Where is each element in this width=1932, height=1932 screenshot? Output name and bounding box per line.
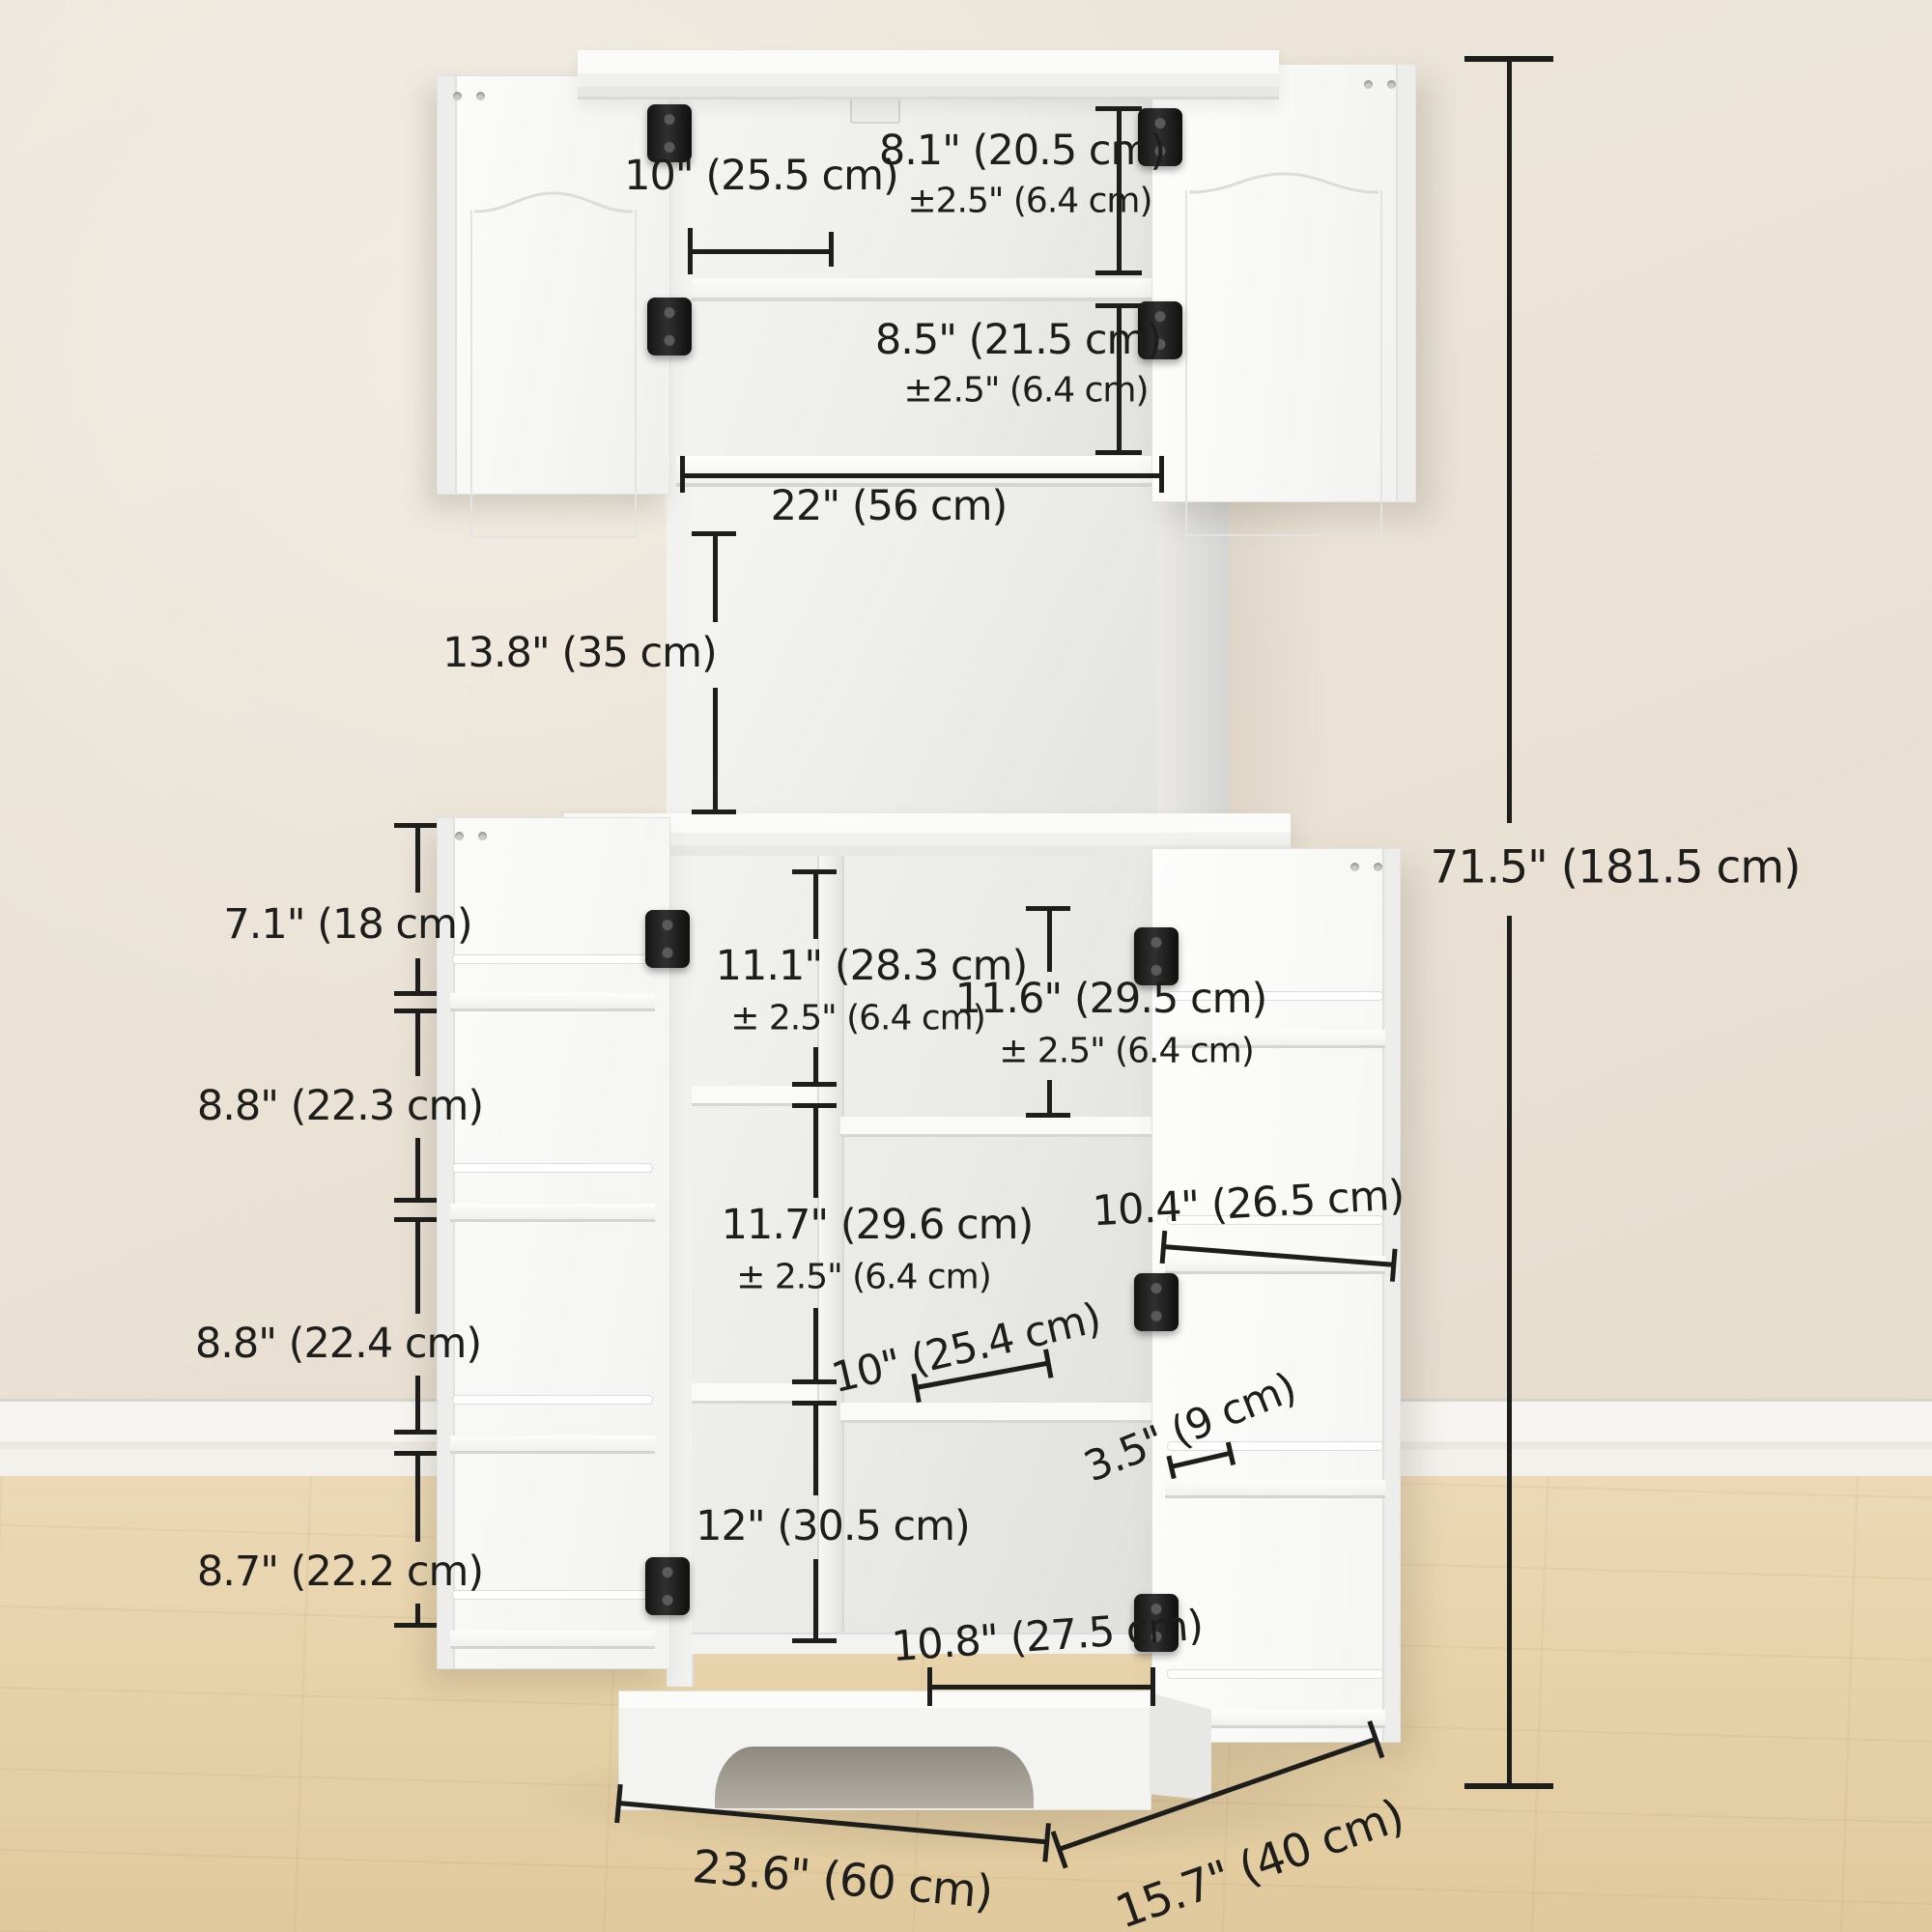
left-rack-rail bbox=[452, 1395, 653, 1405]
dim-cap bbox=[394, 1430, 437, 1435]
dim-overall-height-label: 71.5" (181.5 cm) bbox=[1431, 841, 1801, 895]
dim-cap bbox=[692, 531, 736, 536]
dim-upper-compartment-tolerance: ±2.5" (6.4 cm) bbox=[907, 182, 1151, 221]
dim-tick bbox=[680, 456, 685, 493]
dim-cap bbox=[394, 1198, 437, 1203]
dim-left-rack-tier4-label: 8.7" (22.2 cm) bbox=[197, 1548, 483, 1596]
dim-cap bbox=[394, 1217, 437, 1222]
dim-left-rack-tier2-label: 8.8" (22.3 cm) bbox=[197, 1082, 483, 1130]
dim-left-middle-tolerance: ± 2.5" (6.4 cm) bbox=[736, 1258, 991, 1297]
dim-left-upper-line bbox=[813, 871, 818, 939]
screw-icon bbox=[1350, 863, 1359, 871]
dim-left-rack-tier2-line bbox=[415, 1010, 420, 1076]
dim-cap bbox=[792, 1401, 837, 1406]
left-rack-rail bbox=[452, 954, 653, 964]
dim-bottom-compartment-label: 12" (30.5 cm) bbox=[696, 1502, 970, 1550]
dim-cap bbox=[692, 810, 736, 814]
top-left-door bbox=[437, 75, 670, 495]
screw-icon bbox=[476, 92, 485, 100]
dim-upper-compartment-label: 8.1" (20.5 cm) bbox=[879, 127, 1165, 175]
dim-cap bbox=[1464, 1783, 1553, 1789]
dim-left-middle-line bbox=[813, 1105, 818, 1198]
dim-interior-width-line bbox=[680, 473, 1163, 478]
dim-bottom-width-line bbox=[927, 1685, 1155, 1690]
hutch-shelf-upper bbox=[692, 278, 1157, 301]
dim-left-rack-tier1-label: 7.1" (18 cm) bbox=[223, 900, 471, 949]
dim-top-shelf-depth-label: 10" (25.5 cm) bbox=[624, 152, 898, 200]
hinge-icon bbox=[647, 298, 692, 355]
screw-icon bbox=[453, 92, 462, 100]
door-edge-strip bbox=[438, 76, 457, 494]
dim-open-shelf-line bbox=[713, 533, 718, 622]
dim-tick bbox=[927, 1667, 932, 1706]
right-rack-board bbox=[1165, 1480, 1385, 1498]
screw-icon bbox=[455, 832, 464, 840]
right-rack-rail bbox=[1167, 1669, 1383, 1679]
screw-icon bbox=[1364, 80, 1373, 89]
dim-cap bbox=[1095, 303, 1142, 308]
dim-left-rack-tier1-line bbox=[415, 825, 420, 893]
dim-right-upper-label: 11.6" (29.5 cm) bbox=[955, 975, 1267, 1023]
dim-open-shelf-line bbox=[713, 688, 718, 811]
dim-left-rack-tier3-line bbox=[415, 1219, 420, 1314]
dim-right-upper-tolerance: ± 2.5" (6.4 cm) bbox=[999, 1032, 1254, 1071]
dim-cap bbox=[1464, 56, 1553, 62]
dim-left-rack-tier3-label: 8.8" (22.4 cm) bbox=[195, 1320, 481, 1368]
dim-left-middle-label: 11.7" (29.6 cm) bbox=[722, 1201, 1034, 1249]
dim-interior-width-label: 22" (56 cm) bbox=[771, 482, 1008, 530]
hutch-left-side-panel bbox=[667, 93, 694, 817]
dim-upper-compartment-line bbox=[1117, 108, 1122, 272]
screw-icon bbox=[1374, 863, 1382, 871]
dim-left-upper-tolerance: ± 2.5" (6.4 cm) bbox=[730, 999, 985, 1038]
dim-overall-height-line bbox=[1507, 916, 1512, 1785]
dim-top-shelf-depth-line bbox=[688, 249, 829, 254]
dim-cap bbox=[394, 1623, 437, 1628]
dim-cap bbox=[1095, 270, 1142, 275]
door-panel-groove bbox=[470, 210, 637, 538]
dim-hutch-lower-compartment-tolerance: ±2.5" (6.4 cm) bbox=[903, 371, 1148, 411]
dim-cap bbox=[792, 1082, 837, 1087]
dim-hutch-lower-line bbox=[1117, 305, 1122, 452]
right-column-shelf-2 bbox=[840, 1403, 1157, 1423]
dim-left-rack-tier2-line bbox=[415, 1138, 420, 1200]
dim-cap bbox=[792, 1638, 837, 1643]
dim-right-upper-line bbox=[1047, 908, 1052, 972]
left-rack-board bbox=[450, 1204, 655, 1222]
plinth-arch-cutout bbox=[715, 1747, 1034, 1808]
hinge-icon bbox=[645, 1557, 690, 1615]
dim-bottom-compartment-line bbox=[813, 1403, 818, 1495]
door-edge-strip bbox=[1382, 849, 1400, 1742]
left-rack-board bbox=[450, 1435, 655, 1454]
screw-icon bbox=[478, 832, 487, 840]
left-rack-rail bbox=[452, 1163, 653, 1173]
left-rack-board bbox=[450, 993, 655, 1011]
dim-overall-height-line bbox=[1507, 58, 1512, 823]
dim-right-upper-line bbox=[1047, 1080, 1052, 1115]
dim-left-rack-tier4-line bbox=[415, 1453, 420, 1542]
dim-cap bbox=[1095, 450, 1142, 455]
dim-left-upper-line bbox=[813, 1047, 818, 1084]
dim-cap bbox=[1026, 906, 1070, 911]
dim-left-rack-tier1-line bbox=[415, 958, 420, 993]
dim-cap bbox=[1095, 106, 1142, 111]
dim-left-middle-line bbox=[813, 1308, 818, 1381]
dim-tick bbox=[1159, 456, 1164, 493]
dim-cap bbox=[394, 823, 437, 828]
dim-cap bbox=[792, 1103, 837, 1108]
door-panel-groove bbox=[1185, 190, 1382, 536]
pantry-cabinet-dimension-diagram: 10" (25.5 cm) 8.1" (20.5 cm) ±2.5" (6.4 … bbox=[0, 0, 1932, 1932]
left-rack-board bbox=[450, 1631, 655, 1649]
dim-cap bbox=[394, 991, 437, 996]
dim-cap bbox=[792, 869, 837, 874]
dim-cap bbox=[394, 1451, 437, 1456]
door-edge-strip bbox=[1396, 65, 1415, 501]
dim-left-rack-tier3-line bbox=[415, 1376, 420, 1432]
screw-icon bbox=[1387, 80, 1396, 89]
dim-cap bbox=[394, 1009, 437, 1013]
dim-left-rack-tier4-line bbox=[415, 1604, 420, 1625]
hinge-icon bbox=[1134, 1273, 1179, 1331]
hutch-top-panel bbox=[578, 50, 1279, 99]
hutch-open-compartment bbox=[692, 481, 1157, 817]
top-right-door bbox=[1151, 64, 1416, 502]
dim-tick bbox=[688, 228, 693, 274]
hinge-icon bbox=[645, 910, 690, 968]
plinth-side-return bbox=[1150, 1692, 1211, 1801]
right-column-shelf-1 bbox=[840, 1117, 1157, 1137]
dim-tick bbox=[1151, 1667, 1155, 1706]
dim-cap bbox=[792, 1379, 837, 1384]
dim-cap bbox=[1026, 1113, 1070, 1118]
dim-open-shelf-label: 13.8" (35 cm) bbox=[442, 629, 717, 677]
dim-bottom-compartment-line bbox=[813, 1559, 818, 1640]
dim-tick bbox=[829, 232, 834, 267]
